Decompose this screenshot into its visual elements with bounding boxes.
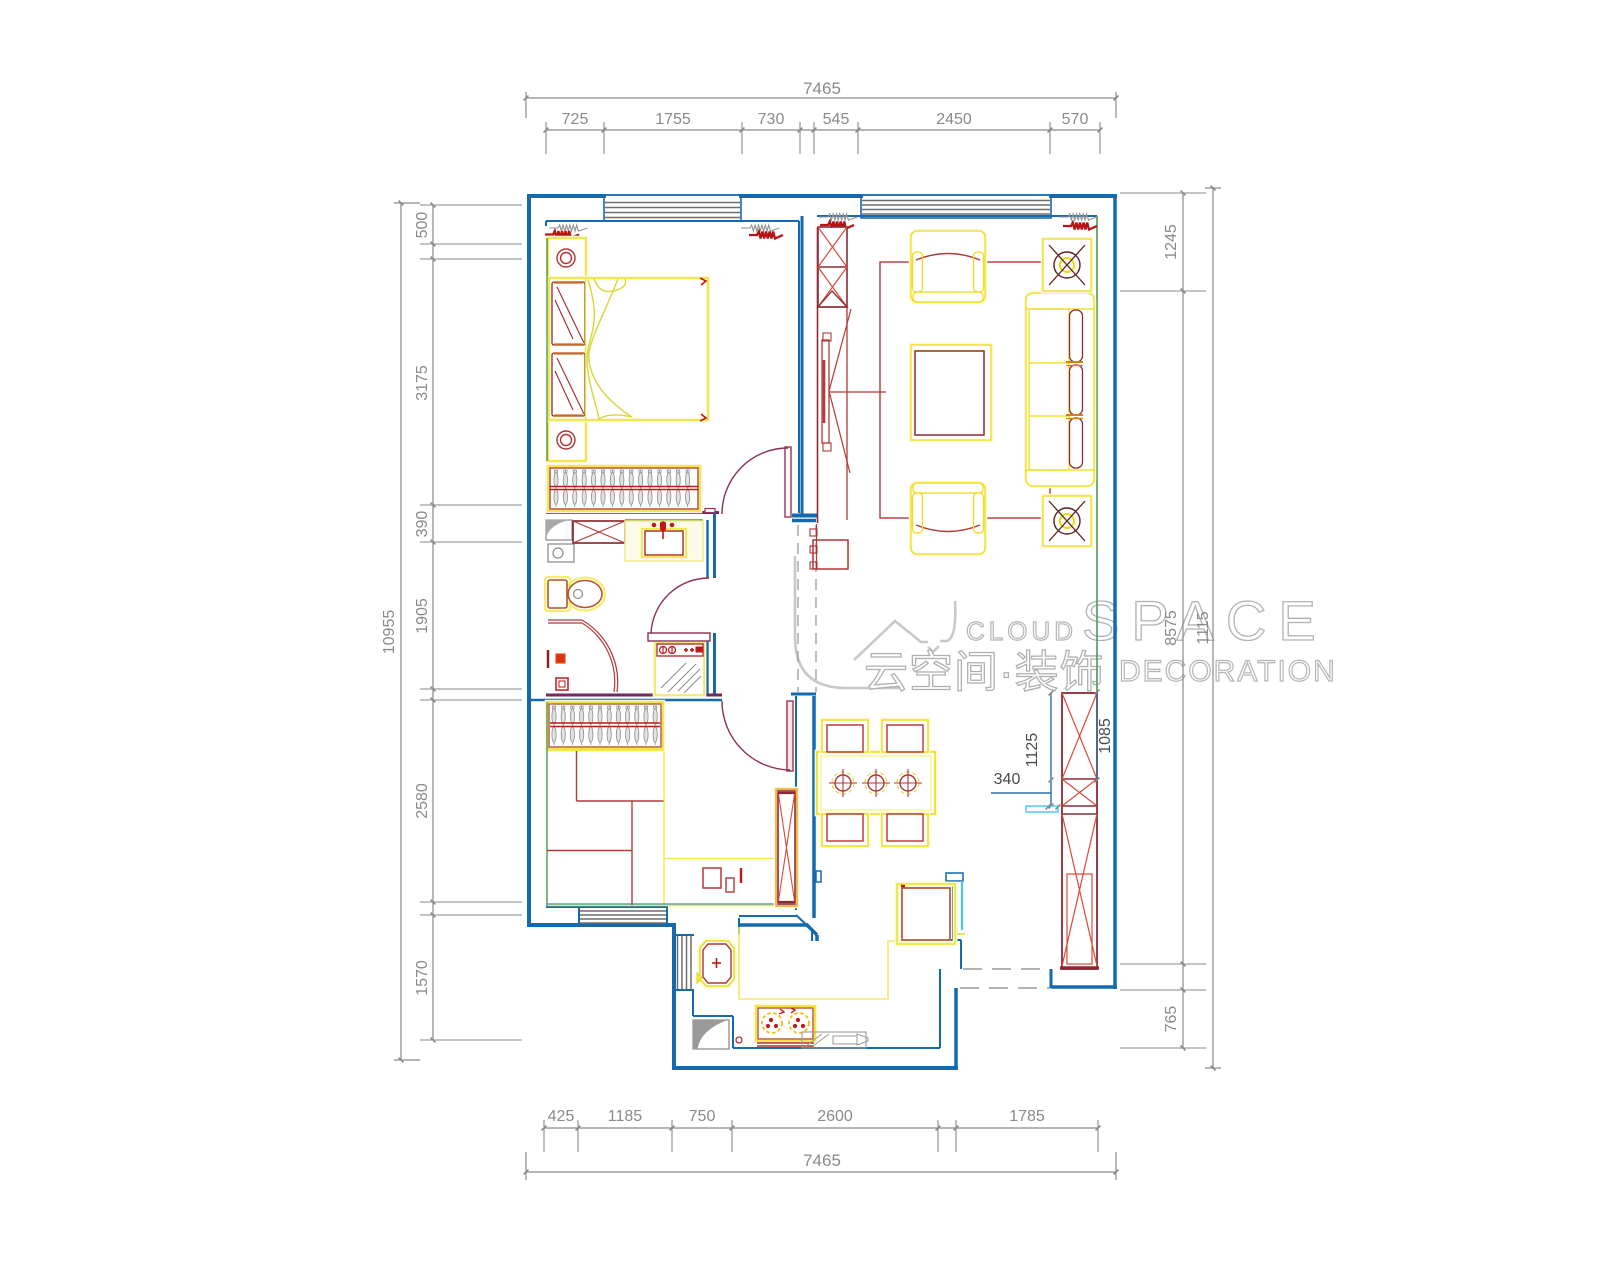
svg-text:425: 425 <box>548 1108 575 1125</box>
svg-text:2450: 2450 <box>936 111 972 128</box>
svg-text:500: 500 <box>414 212 431 239</box>
svg-text:2580: 2580 <box>414 783 431 819</box>
svg-text:10955: 10955 <box>381 610 398 655</box>
svg-text:765: 765 <box>1163 1006 1180 1033</box>
svg-text:1905: 1905 <box>414 598 431 634</box>
svg-text:8575: 8575 <box>1163 610 1180 646</box>
svg-text:390: 390 <box>414 511 431 538</box>
svg-text:1570: 1570 <box>414 960 431 996</box>
svg-text:2600: 2600 <box>817 1108 853 1125</box>
svg-text:7465: 7465 <box>803 79 841 98</box>
svg-text:1755: 1755 <box>655 111 691 128</box>
svg-text:750: 750 <box>689 1108 716 1125</box>
svg-text:DECORATION: DECORATION <box>1119 655 1337 688</box>
svg-text:CLOUD: CLOUD <box>966 616 1077 646</box>
svg-text:1245: 1245 <box>1163 224 1180 260</box>
svg-text:1125: 1125 <box>1024 733 1041 768</box>
svg-text:340: 340 <box>994 771 1021 788</box>
svg-text:545: 545 <box>823 111 850 128</box>
svg-text:1785: 1785 <box>1009 1108 1045 1125</box>
svg-text:3175: 3175 <box>414 365 431 401</box>
svg-text:1085: 1085 <box>1097 718 1114 754</box>
svg-text:云空间·装饰: 云空间·装饰 <box>864 648 1105 697</box>
svg-text:1185: 1185 <box>608 1108 643 1125</box>
svg-text:1115: 1115 <box>1195 611 1212 644</box>
svg-text:725: 725 <box>562 111 589 128</box>
svg-text:570: 570 <box>1062 111 1089 128</box>
svg-text:730: 730 <box>758 111 785 128</box>
svg-text:7465: 7465 <box>803 1151 841 1170</box>
